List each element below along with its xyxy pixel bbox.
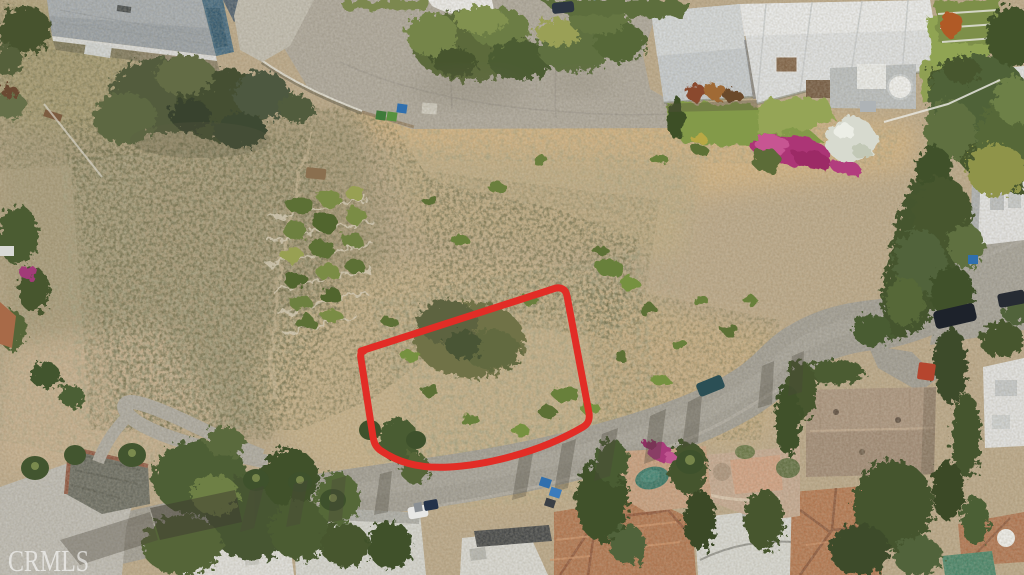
- svg-text:CRMLS: CRMLS: [8, 543, 89, 575]
